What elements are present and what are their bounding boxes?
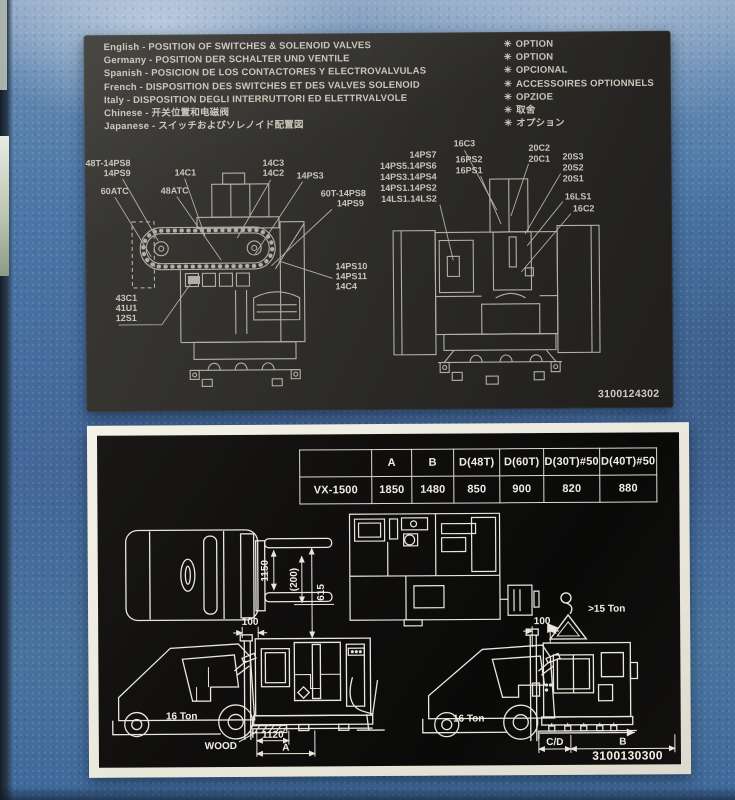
label-16ps1: 16PS1 <box>456 165 483 175</box>
cell-d30t-50: 820 <box>544 475 600 502</box>
wood-label: WOOD <box>205 741 237 752</box>
switch-position-placard: English - POSITION OF SWITCHES & SOLENOI… <box>84 31 674 413</box>
header-model <box>300 450 372 477</box>
label-14c4: 14C4 <box>335 281 357 291</box>
label-60atc: 60ATC <box>101 186 129 196</box>
dim-1120-label: 1120 <box>262 730 284 741</box>
label-14ls1-14ls2: 14LS1.14LS2 <box>381 194 437 204</box>
crane-capacity-label: >15 Ton <box>588 604 625 615</box>
label-14ps7: 14PS7 <box>409 150 436 160</box>
label-14ps10: 14PS10 <box>335 261 367 271</box>
placard-part-number: 3100124302 <box>598 388 659 400</box>
panel-bottom-shadow <box>0 786 735 800</box>
label-14ps5-14ps6: 14PS5.14PS6 <box>380 161 437 171</box>
table-row: VX-1500 1850 1480 850 900 820 880 <box>300 475 657 504</box>
ton-left-label: 16 Ton <box>166 711 198 722</box>
cell-a: 1850 <box>372 476 412 503</box>
dim-100-right-label: 100 <box>534 616 551 627</box>
lifting-instruction-placard: 1150 (200) 615 <box>87 422 691 778</box>
ton-right-label: 16 Ton <box>453 713 485 724</box>
label-14ps1-14ps2: 14PS1.14PS2 <box>380 183 437 193</box>
label-20s2: 20S2 <box>563 162 584 172</box>
label-16c3: 16C3 <box>454 138 476 148</box>
dim-b-label: B <box>619 737 626 748</box>
placard-part-number: 3100130300 <box>592 748 663 762</box>
label-14c3: 14C3 <box>262 158 284 168</box>
label-48t-14ps8: 48T-14PS8 <box>85 158 130 168</box>
header-b: B <box>412 449 454 476</box>
cell-d60t: 900 <box>500 476 544 503</box>
dim-100-left-label: 100 <box>242 617 259 628</box>
label-16c2: 16C2 <box>573 203 595 213</box>
label-14c2: 14C2 <box>263 168 285 178</box>
label-12s1: 12S1 <box>116 313 137 323</box>
header-a: A <box>372 449 412 476</box>
background-glimpse <box>0 136 9 276</box>
label-41u1: 41U1 <box>116 303 138 313</box>
machine-panel-photo: English - POSITION OF SWITCHES & SOLENOI… <box>0 0 735 800</box>
dimension-spec-table: A B D(48T) D(60T) D(30T)#50 D(40T)#50 VX… <box>299 447 657 504</box>
table-header-row: A B D(48T) D(60T) D(30T)#50 D(40T)#50 <box>300 448 657 477</box>
cell-d48t: 850 <box>454 476 500 503</box>
label-14ps9-right: 14PS9 <box>337 198 364 208</box>
carried-machine-right <box>539 642 638 737</box>
label-16ps2: 16PS2 <box>455 154 482 164</box>
lifting-placard-face: 1150 (200) 615 <box>97 432 681 768</box>
machine-plan-view <box>349 513 539 626</box>
label-20s1: 20S1 <box>563 173 584 183</box>
label-20c2: 20C2 <box>528 143 550 153</box>
label-20c1: 20C1 <box>528 154 550 164</box>
header-d30t-50: D(30T)#50 <box>544 448 600 475</box>
cell-b: 1480 <box>412 476 454 503</box>
forklift-top-view <box>126 529 333 620</box>
dim-615-label: 615 <box>316 584 327 601</box>
cell-d40t-50: 880 <box>600 475 657 502</box>
dim-200-label: (200) <box>289 568 300 591</box>
header-d60t: D(60T) <box>500 449 544 476</box>
label-43c1: 43C1 <box>116 293 138 303</box>
dim-1150-label: 1150 <box>260 559 271 581</box>
dim-a-label: A <box>282 743 289 754</box>
carried-machine-left <box>253 638 385 731</box>
background-glimpse-top <box>0 0 7 90</box>
label-60t-14ps8: 60T-14PS8 <box>321 188 366 198</box>
switch-position-diagrams: 48T-14PS8 14PS9 60ATC 14C1 48ATC 14C3 14… <box>84 31 674 413</box>
cell-model: VX-1500 <box>300 477 372 504</box>
atc-magazine-diagram <box>132 173 306 387</box>
dim-cd-label: C/D <box>546 737 563 748</box>
label-14c1: 14C1 <box>175 167 197 177</box>
label-16ls1: 16LS1 <box>565 191 592 201</box>
label-14ps3-14ps4: 14PS3.14PS4 <box>380 172 437 182</box>
label-14ps3-left: 14PS3 <box>297 170 324 180</box>
crane-hook-symbol <box>547 593 586 639</box>
label-20s3: 20S3 <box>562 151 583 161</box>
label-14ps11: 14PS11 <box>335 271 367 281</box>
label-14ps9-left: 14PS9 <box>104 168 131 178</box>
panel-left-edge <box>0 0 13 800</box>
header-d48t: D(48T) <box>454 449 500 476</box>
label-48atc: 48ATC <box>161 185 189 195</box>
header-d40t-50: D(40T)#50 <box>600 448 657 475</box>
